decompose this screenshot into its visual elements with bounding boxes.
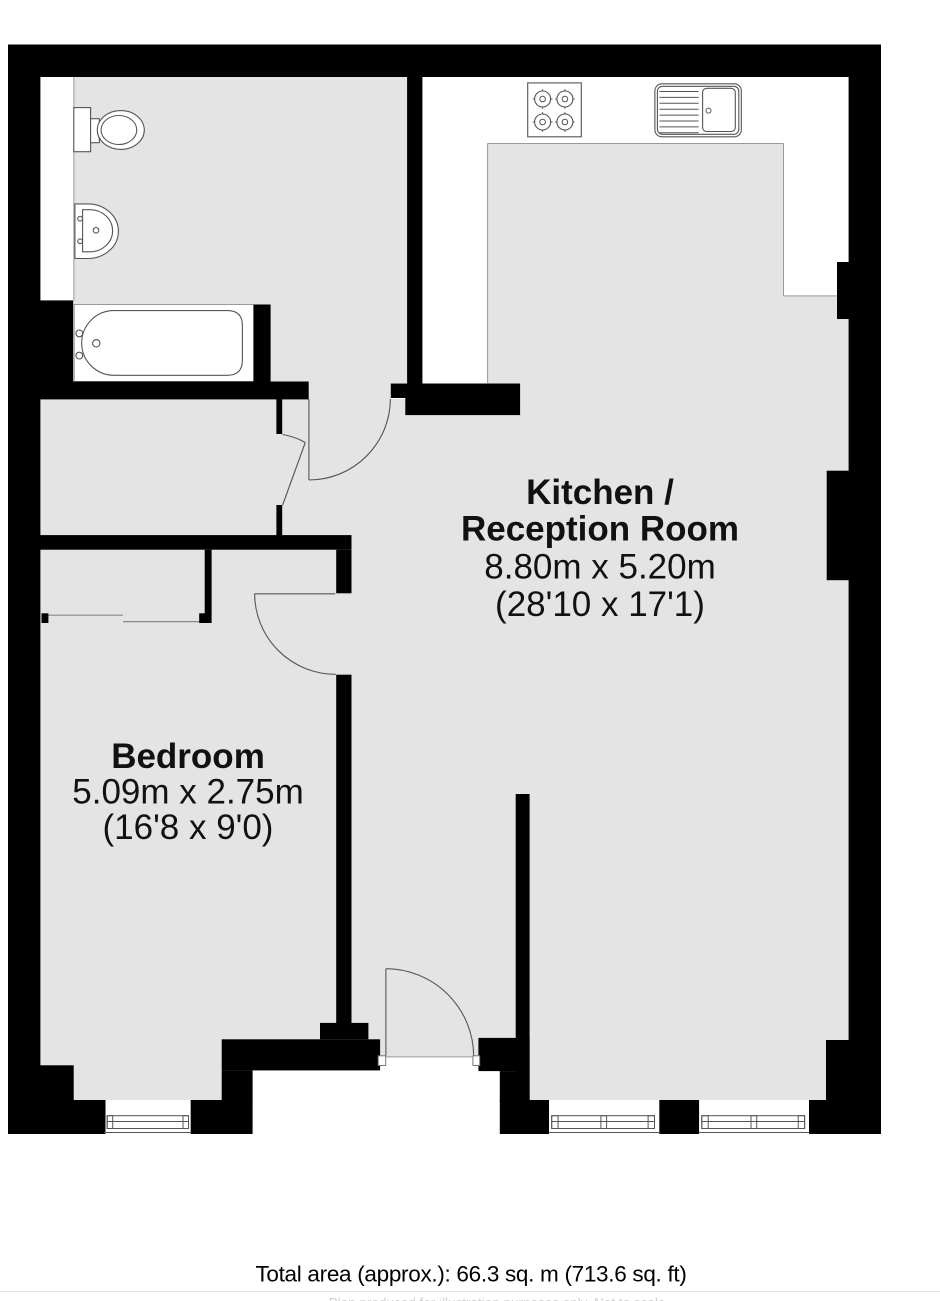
svg-text:Reception Room: Reception Room — [461, 510, 739, 549]
svg-text:(28'10 x 17'1): (28'10 x 17'1) — [495, 585, 705, 624]
svg-text:5.09m x 2.75m: 5.09m x 2.75m — [72, 773, 304, 812]
svg-text:8.80m x 5.20m: 8.80m x 5.20m — [484, 548, 716, 587]
svg-text:Bedroom: Bedroom — [111, 737, 265, 776]
svg-text:Total area (approx.): 66.3 sq.: Total area (approx.): 66.3 sq. m (713.6 … — [255, 1261, 686, 1286]
svg-text:Plan produced for illustration: Plan produced for illustration purposes … — [329, 1296, 666, 1301]
svg-text:(16'8 x 9'0): (16'8 x 9'0) — [103, 808, 274, 847]
svg-text:Kitchen /: Kitchen / — [526, 473, 674, 512]
